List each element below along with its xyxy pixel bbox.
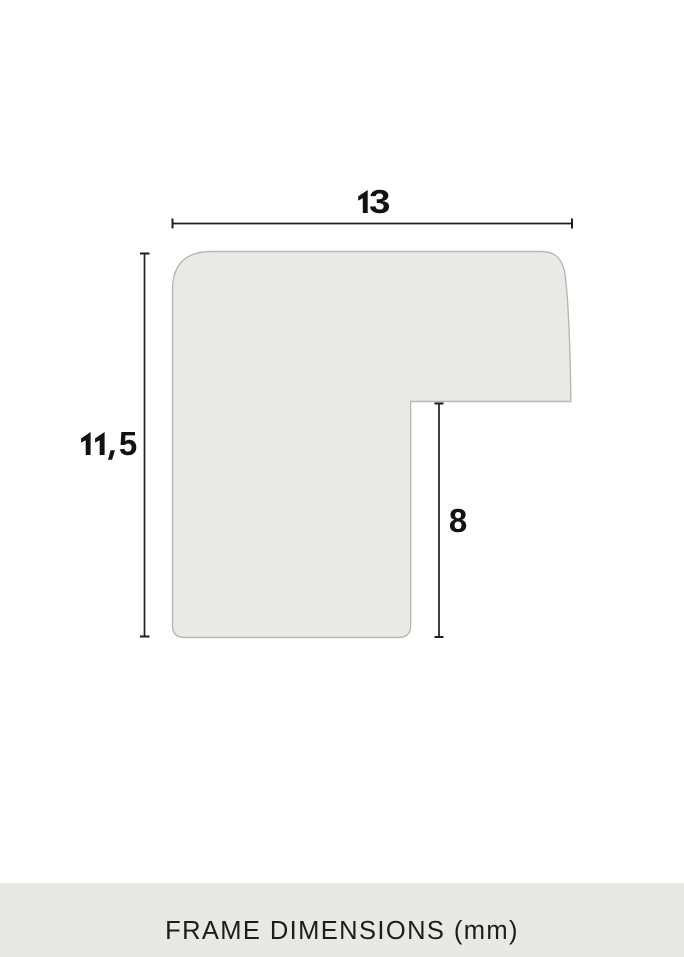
svg-text:3: 3 [369,183,390,220]
svg-text:5: 5 [119,425,137,462]
svg-text:8: 8 [449,502,467,539]
